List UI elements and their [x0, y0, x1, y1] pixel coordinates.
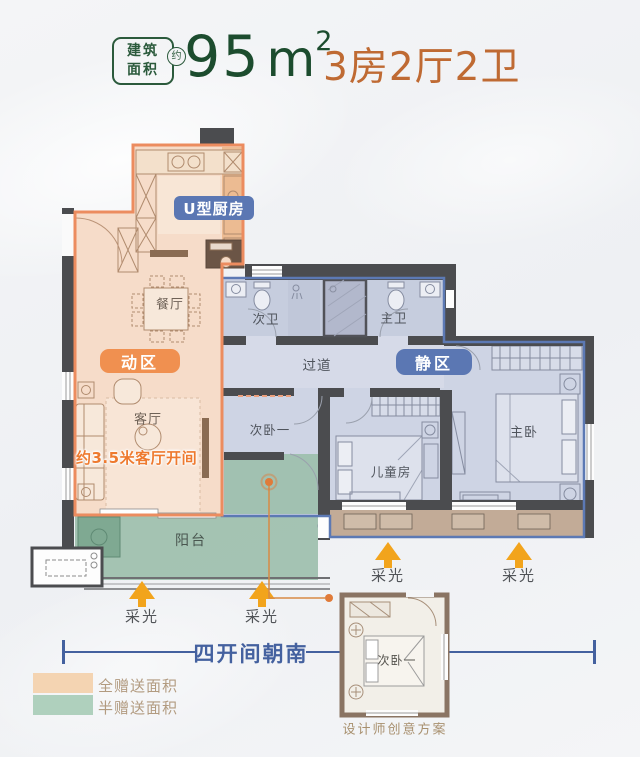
- room-label-kids-room: 儿童房: [371, 462, 412, 481]
- layout-title: 3房2厅2卫: [323, 36, 520, 92]
- room-label-second-bedroom: 次卧一: [250, 420, 291, 439]
- area-badge-line2: 面积: [127, 61, 159, 80]
- south-facing-annotation: 四开间朝南: [194, 638, 309, 668]
- legend-swatch-half-gift: [33, 695, 93, 715]
- kitchen-zone-badge: U型厨房: [174, 196, 254, 220]
- quiet-zone-badge: 静区: [396, 349, 472, 375]
- area-unit: m: [267, 30, 316, 88]
- area-number: 95: [184, 24, 261, 90]
- legend-label-half-gift: 半赠送面积: [98, 697, 178, 718]
- area-badge-line1: 建筑: [127, 42, 159, 61]
- legend-swatch-full-gift: [33, 673, 93, 693]
- room-label-hallway: 过道: [303, 354, 332, 374]
- daylight-label: 采光: [125, 606, 159, 627]
- dimension-line: [62, 640, 596, 664]
- inset-caption: 设计师创意方案: [342, 719, 447, 738]
- daylight-label: 采光: [245, 606, 279, 627]
- exterior-ac-box: [32, 548, 102, 586]
- room-label-master-bedroom: 主卧: [510, 422, 538, 441]
- living-width-annotation: 约3.5米客厅开间: [76, 447, 197, 468]
- area-value: 95m2: [184, 24, 332, 90]
- daylight-label: 采光: [502, 565, 536, 586]
- area-badge: 建筑 面积: [112, 37, 174, 85]
- room-label-dining: 餐厅: [156, 294, 184, 313]
- floorplan-drawing: [0, 0, 640, 757]
- room-label-balcony: 阳台: [175, 530, 207, 550]
- room-label-master-bath: 主卫: [380, 308, 407, 327]
- approx-label: 约: [167, 47, 186, 66]
- daylight-label: 采光: [371, 565, 405, 586]
- room-label-second-bath: 次卫: [252, 309, 279, 328]
- inset-room-label: 次卧一: [377, 652, 416, 669]
- room-label-living: 客厅: [134, 409, 162, 428]
- active-zone-badge: 动区: [100, 349, 180, 373]
- flyer-canvas: 建筑 面积 约 95m2 3房2厅2卫: [0, 0, 640, 757]
- legend-label-full-gift: 全赠送面积: [98, 675, 178, 696]
